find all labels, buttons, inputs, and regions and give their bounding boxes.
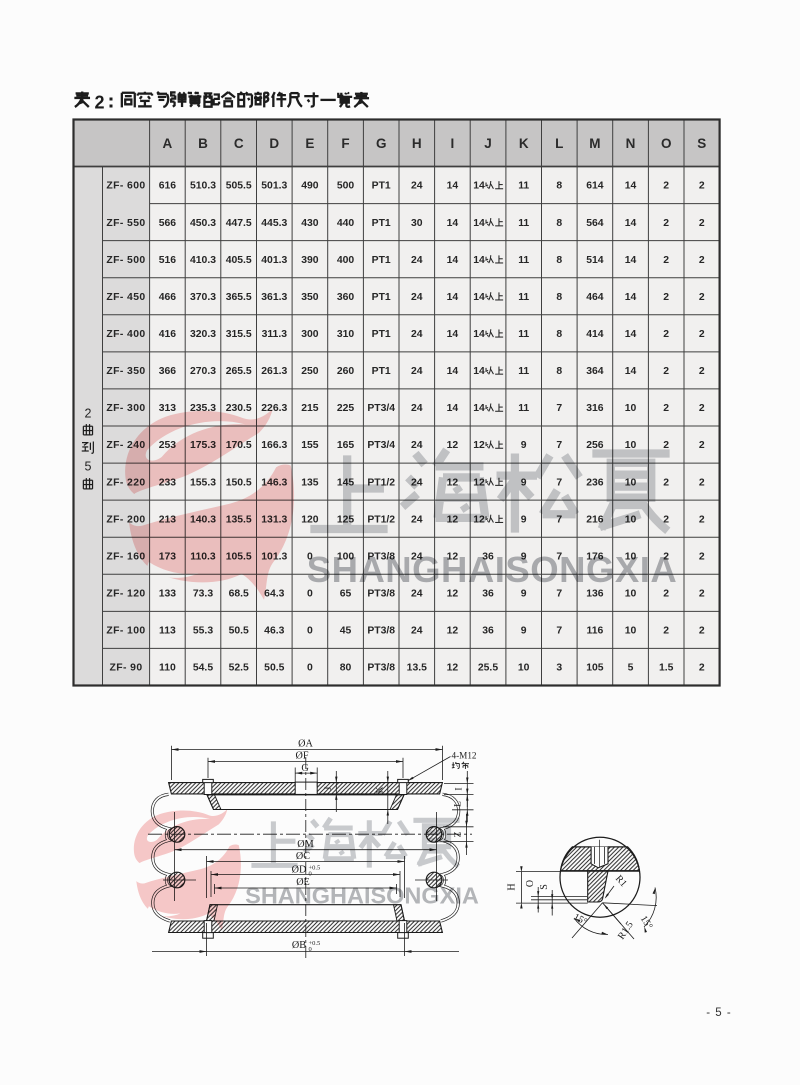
svg-text:7: 7 <box>556 477 562 488</box>
svg-text:564: 564 <box>586 218 604 229</box>
svg-text:A: A <box>163 136 173 151</box>
svg-text:24: 24 <box>411 514 423 525</box>
svg-text:ZF- 120: ZF- 120 <box>106 589 145 600</box>
svg-text:24: 24 <box>411 589 423 600</box>
svg-text:8: 8 <box>556 366 562 377</box>
svg-text:445.3: 445.3 <box>261 218 287 229</box>
svg-text:300: 300 <box>301 329 319 340</box>
svg-text:ØA: ØA <box>298 738 313 749</box>
svg-text:12: 12 <box>473 440 485 451</box>
svg-text:73.3: 73.3 <box>193 589 213 600</box>
svg-text:50.5: 50.5 <box>229 626 249 637</box>
svg-text:9: 9 <box>521 440 527 451</box>
svg-text:ØF: ØF <box>295 750 308 761</box>
svg-text:230.5: 230.5 <box>226 403 252 414</box>
svg-text:14: 14 <box>625 329 637 340</box>
svg-text:C: C <box>234 136 244 151</box>
svg-text:447.5: 447.5 <box>226 218 252 229</box>
svg-text:Z: Z <box>454 831 464 837</box>
svg-text:14: 14 <box>447 366 459 377</box>
svg-text:24: 24 <box>411 181 423 192</box>
svg-text:2: 2 <box>663 181 669 192</box>
svg-text:416: 416 <box>159 329 177 340</box>
svg-text:2: 2 <box>663 218 669 229</box>
svg-text:F: F <box>341 136 349 151</box>
svg-text:401.3: 401.3 <box>261 255 287 266</box>
svg-text:320.3: 320.3 <box>190 329 216 340</box>
svg-text:133: 133 <box>159 589 177 600</box>
svg-text:5: 5 <box>85 460 92 474</box>
svg-text:46.3: 46.3 <box>264 626 284 637</box>
svg-text:64.3: 64.3 <box>264 589 284 600</box>
svg-text:14: 14 <box>473 292 485 303</box>
svg-text:80: 80 <box>340 663 352 674</box>
svg-text:S: S <box>539 884 550 890</box>
svg-text:8: 8 <box>556 181 562 192</box>
svg-text:2: 2 <box>699 663 705 674</box>
svg-text:PT3/8: PT3/8 <box>367 663 395 674</box>
svg-text:155.3: 155.3 <box>190 477 216 488</box>
svg-text:2: 2 <box>663 626 669 637</box>
svg-text:514: 514 <box>586 255 604 266</box>
svg-text:0: 0 <box>307 589 313 600</box>
svg-text:313: 313 <box>159 403 177 414</box>
svg-text:12: 12 <box>447 663 459 674</box>
svg-text:+0.5: +0.5 <box>309 940 321 947</box>
svg-text:52.5: 52.5 <box>229 663 249 674</box>
svg-text:14: 14 <box>447 329 459 340</box>
svg-text:12: 12 <box>447 626 459 637</box>
svg-text:410.3: 410.3 <box>190 255 216 266</box>
svg-text:11: 11 <box>518 255 529 266</box>
svg-text:PT3/4: PT3/4 <box>367 403 395 414</box>
svg-text:2: 2 <box>663 366 669 377</box>
svg-text:2: 2 <box>663 255 669 266</box>
svg-text:PT1: PT1 <box>372 255 391 266</box>
svg-text:2: 2 <box>699 440 705 451</box>
svg-text:2: 2 <box>663 329 669 340</box>
svg-text:L: L <box>555 136 563 151</box>
svg-text:261.3: 261.3 <box>261 366 287 377</box>
svg-text:11: 11 <box>518 329 529 340</box>
svg-text:10: 10 <box>625 589 637 600</box>
svg-text:ZF- 400: ZF- 400 <box>106 329 145 340</box>
svg-text:316: 316 <box>586 403 604 414</box>
svg-text:136: 136 <box>586 589 604 600</box>
svg-text:O: O <box>661 136 672 151</box>
svg-text:PT3/8: PT3/8 <box>367 589 395 600</box>
svg-text:H: H <box>507 883 518 890</box>
svg-text:S: S <box>697 136 706 151</box>
svg-text:68.5: 68.5 <box>229 589 249 600</box>
svg-text:400: 400 <box>337 255 355 266</box>
svg-text:0: 0 <box>309 946 312 953</box>
svg-text:516: 516 <box>159 255 177 266</box>
svg-text:55.3: 55.3 <box>193 626 213 637</box>
svg-text:25.5: 25.5 <box>478 663 498 674</box>
svg-text:ZF- 550: ZF- 550 <box>106 218 145 229</box>
svg-text:9: 9 <box>521 589 527 600</box>
svg-text:54.5: 54.5 <box>193 663 213 674</box>
svg-text:D: D <box>269 136 279 151</box>
svg-text:14: 14 <box>625 181 637 192</box>
svg-text:G: G <box>376 136 387 151</box>
svg-text:PT1: PT1 <box>372 218 391 229</box>
svg-text:36: 36 <box>482 589 494 600</box>
svg-text:2: 2 <box>699 218 705 229</box>
svg-text:14: 14 <box>447 255 459 266</box>
svg-text:3: 3 <box>556 663 562 674</box>
svg-text:K: K <box>519 136 529 151</box>
svg-text:310: 310 <box>337 329 355 340</box>
svg-text:9: 9 <box>521 626 527 637</box>
svg-text:8: 8 <box>556 218 562 229</box>
svg-text:+0.5: +0.5 <box>309 865 321 872</box>
svg-text:4-M12: 4-M12 <box>452 751 477 761</box>
svg-text:14: 14 <box>447 403 459 414</box>
svg-text:PT1: PT1 <box>372 181 391 192</box>
svg-text:24: 24 <box>411 255 423 266</box>
svg-text:0: 0 <box>307 663 313 674</box>
svg-text:370.3: 370.3 <box>190 292 216 303</box>
svg-text:J: J <box>324 786 334 790</box>
svg-text:ZF- 350: ZF- 350 <box>106 366 145 377</box>
svg-text:ZF- 600: ZF- 600 <box>106 181 145 192</box>
svg-text:2: 2 <box>663 403 669 414</box>
svg-text:14: 14 <box>473 218 485 229</box>
svg-text:30: 30 <box>411 218 423 229</box>
svg-text:14: 14 <box>625 255 637 266</box>
svg-text:2: 2 <box>699 477 705 488</box>
svg-text:11: 11 <box>518 181 529 192</box>
svg-text:365.5: 365.5 <box>226 292 252 303</box>
svg-text:2: 2 <box>663 292 669 303</box>
svg-text:2: 2 <box>699 514 705 525</box>
svg-text:L: L <box>454 801 464 807</box>
svg-text:405.5: 405.5 <box>226 255 252 266</box>
svg-text:2: 2 <box>699 626 705 637</box>
svg-text:116: 116 <box>587 626 604 637</box>
svg-text:9: 9 <box>521 514 527 525</box>
svg-text:466: 466 <box>159 292 177 303</box>
svg-text:311.3: 311.3 <box>262 329 288 340</box>
svg-text:PT1: PT1 <box>372 292 391 303</box>
svg-text:ZF- 450: ZF- 450 <box>106 292 145 303</box>
svg-text:14: 14 <box>447 292 459 303</box>
svg-text:24: 24 <box>411 292 423 303</box>
svg-text:10: 10 <box>625 403 637 414</box>
svg-text:E: E <box>305 136 314 151</box>
svg-text:150.5: 150.5 <box>226 477 252 488</box>
svg-text:2: 2 <box>699 403 705 414</box>
svg-text:ZF- 100: ZF- 100 <box>106 626 145 637</box>
svg-text:8: 8 <box>556 255 562 266</box>
svg-text:226.3: 226.3 <box>261 403 287 414</box>
svg-text:M: M <box>589 136 600 151</box>
svg-text:440: 440 <box>337 218 355 229</box>
svg-text:PT3/4: PT3/4 <box>367 440 395 451</box>
svg-text:14: 14 <box>473 329 485 340</box>
svg-text:13.5: 13.5 <box>407 663 427 674</box>
svg-text:490: 490 <box>301 181 319 192</box>
svg-text:24: 24 <box>411 366 423 377</box>
svg-text:315.5: 315.5 <box>226 329 252 340</box>
svg-text:12: 12 <box>447 440 459 451</box>
svg-text:11: 11 <box>518 218 529 229</box>
svg-text:501.3: 501.3 <box>261 181 287 192</box>
svg-text:J: J <box>484 136 492 151</box>
svg-text:2: 2 <box>699 551 705 562</box>
svg-text:14: 14 <box>625 292 637 303</box>
svg-text:ZF- 500: ZF- 500 <box>106 255 145 266</box>
svg-text:14: 14 <box>625 366 637 377</box>
svg-text:166.3: 166.3 <box>261 440 287 451</box>
svg-text:ØB: ØB <box>292 940 306 951</box>
svg-text:390: 390 <box>301 255 319 266</box>
svg-text:360: 360 <box>337 292 355 303</box>
svg-text:ZF- 90: ZF- 90 <box>110 663 143 674</box>
svg-text:7: 7 <box>556 403 562 414</box>
svg-text:8: 8 <box>556 292 562 303</box>
svg-text:2: 2 <box>663 589 669 600</box>
svg-text:N: N <box>626 136 636 151</box>
svg-text:65: 65 <box>340 589 352 600</box>
svg-text:PT1/2: PT1/2 <box>367 514 395 525</box>
svg-text:7: 7 <box>556 626 562 637</box>
svg-text:11: 11 <box>518 292 529 303</box>
svg-text:616: 616 <box>159 181 177 192</box>
svg-text:0: 0 <box>307 626 313 637</box>
svg-text:500: 500 <box>337 181 355 192</box>
svg-text:ZF- 300: ZF- 300 <box>106 403 145 414</box>
svg-text:113: 113 <box>159 626 176 637</box>
svg-text:7: 7 <box>556 589 562 600</box>
svg-text:225: 225 <box>337 403 355 414</box>
svg-text:K: K <box>376 786 386 793</box>
svg-text:265.5: 265.5 <box>226 366 252 377</box>
svg-text:165: 165 <box>337 440 355 451</box>
svg-text:110: 110 <box>159 663 176 674</box>
svg-text:430: 430 <box>301 218 319 229</box>
svg-text:135: 135 <box>301 477 319 488</box>
svg-text:236: 236 <box>586 477 604 488</box>
svg-text:10: 10 <box>625 626 637 637</box>
svg-text:H: H <box>412 136 422 151</box>
svg-text:I: I <box>455 787 465 790</box>
svg-text:250: 250 <box>301 366 319 377</box>
svg-text:45: 45 <box>340 626 352 637</box>
svg-text:ZF- 200: ZF- 200 <box>106 514 145 525</box>
svg-text:2: 2 <box>699 329 705 340</box>
svg-text:361.3: 361.3 <box>261 292 287 303</box>
svg-text:2: 2 <box>699 255 705 266</box>
svg-text:12: 12 <box>447 589 459 600</box>
svg-text:PT3/8: PT3/8 <box>367 626 395 637</box>
svg-text:260: 260 <box>337 366 355 377</box>
svg-text:50.5: 50.5 <box>264 663 284 674</box>
svg-text:464: 464 <box>586 292 604 303</box>
svg-text:105: 105 <box>586 663 604 674</box>
svg-text:1.5: 1.5 <box>659 663 674 674</box>
svg-text:14: 14 <box>447 181 459 192</box>
svg-text:14: 14 <box>473 366 485 377</box>
svg-text:14: 14 <box>447 218 459 229</box>
svg-text:14: 14 <box>625 218 637 229</box>
svg-text:414: 414 <box>586 329 604 340</box>
svg-text:PT1: PT1 <box>372 329 391 340</box>
svg-text:G: G <box>301 763 309 774</box>
svg-text:7: 7 <box>556 440 562 451</box>
svg-text:ØC: ØC <box>296 851 310 862</box>
svg-text:566: 566 <box>159 218 177 229</box>
svg-text:14: 14 <box>473 255 485 266</box>
svg-text:24: 24 <box>411 626 423 637</box>
svg-text:10: 10 <box>518 663 530 674</box>
svg-text:5: 5 <box>628 663 634 674</box>
svg-text:120: 120 <box>301 514 319 525</box>
svg-text:B: B <box>198 136 208 151</box>
svg-text:SHANGHAISONGXIA: SHANGHAISONGXIA <box>245 883 479 909</box>
svg-text:510.3: 510.3 <box>190 181 216 192</box>
svg-text:24: 24 <box>411 440 423 451</box>
svg-text:24: 24 <box>411 403 423 414</box>
svg-text:155: 155 <box>301 440 319 451</box>
svg-text:2: 2 <box>85 407 92 421</box>
svg-text:350: 350 <box>301 292 319 303</box>
svg-text:2: 2 <box>699 589 705 600</box>
svg-text:366: 366 <box>159 366 177 377</box>
svg-text:614: 614 <box>586 181 604 192</box>
svg-text:PT1: PT1 <box>372 366 391 377</box>
svg-text:270.3: 270.3 <box>190 366 216 377</box>
svg-text:2: 2 <box>94 92 104 112</box>
svg-text:14: 14 <box>473 403 485 414</box>
svg-text:O: O <box>525 880 536 887</box>
svg-text:2: 2 <box>699 181 705 192</box>
svg-text:215: 215 <box>301 403 319 414</box>
svg-text:450.3: 450.3 <box>190 218 216 229</box>
svg-text:I: I <box>451 136 455 151</box>
svg-text:36: 36 <box>482 626 494 637</box>
svg-text:11: 11 <box>518 366 529 377</box>
svg-text:2: 2 <box>663 477 669 488</box>
svg-text:364: 364 <box>586 366 604 377</box>
svg-text:SHANGHAISONGXIA: SHANGHAISONGXIA <box>307 549 678 590</box>
svg-text:- 5 -: - 5 - <box>706 1007 731 1019</box>
svg-text:11: 11 <box>518 403 529 414</box>
svg-text:2: 2 <box>699 292 705 303</box>
svg-text:505.5: 505.5 <box>226 181 252 192</box>
svg-text:8: 8 <box>556 329 562 340</box>
svg-text:24: 24 <box>411 329 423 340</box>
svg-text:14: 14 <box>473 181 485 192</box>
svg-text:2: 2 <box>699 366 705 377</box>
